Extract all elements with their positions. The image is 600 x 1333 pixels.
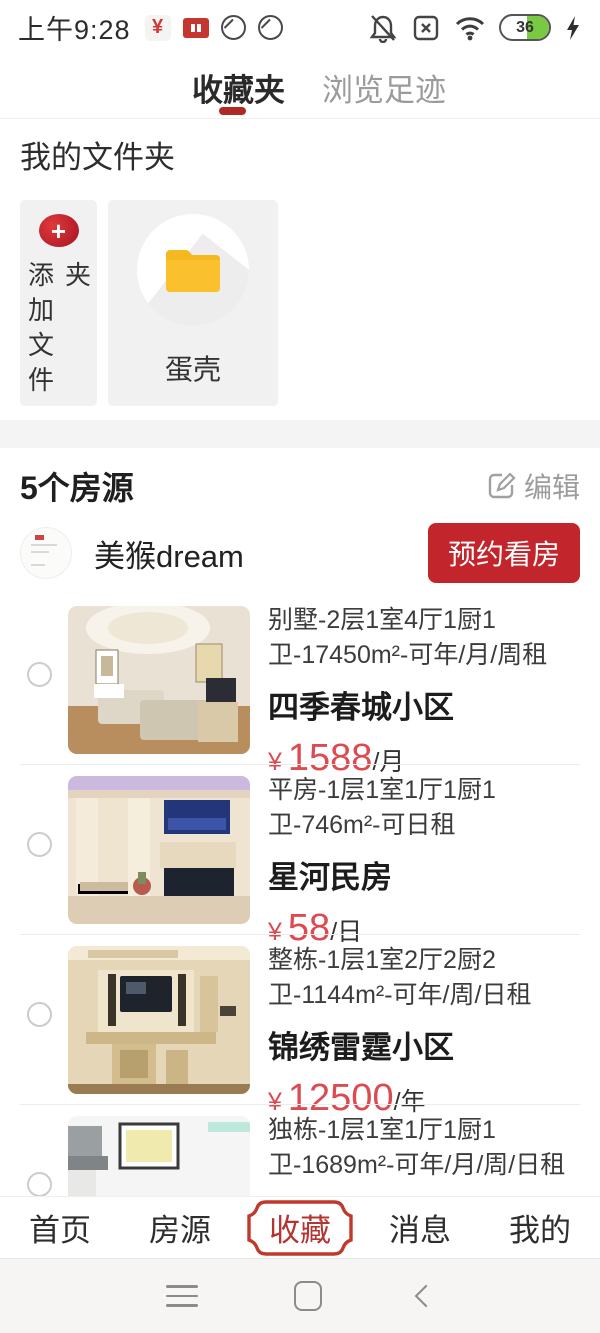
nav-listings[interactable]: 房源 [120,1197,240,1258]
section-divider [0,420,600,448]
add-folder-icon: + [39,214,79,247]
circle-app-icon [221,15,246,40]
nav-favorites-label: 收藏 [269,1205,331,1250]
active-tab-underline [219,107,246,115]
listing-desc: 平房-1层1室1厅1厨1卫-746m²-可日租 [268,773,586,843]
system-status-icons: 36 [368,13,582,43]
listing-desc: 别墅-2层1室4厅1厨1卫-17450m²-可年/月/周租 [268,603,586,673]
landlord-name: 美猴dream [94,531,244,576]
listing-desc: 独栋-1层1室1厅1厨1卫-1689m²-可年/月/周/日租 [268,1113,586,1183]
listing-item[interactable]: 整栋-1层1室2厅2厨2卫-1144m²-可年/周/日租 锦绣雷霆小区 ¥ 12… [0,935,600,1105]
landlord-row: 美猴dream 预约看房 [0,515,600,591]
listing-count: 5个房源 [20,463,134,509]
select-radio[interactable] [27,1002,52,1027]
edit-pencil-icon [486,471,516,501]
listing-item[interactable]: 平房-1层1室1厅1厨1卫-746m²-可日租 星河民房 ¥ 58 /日 [0,765,600,935]
circle-app-icon [258,15,283,40]
notification-icons: ¥ [145,15,283,41]
listing-photo [68,776,250,924]
select-radio[interactable] [27,662,52,687]
yuan-app-icon: ¥ [145,15,171,41]
listing-photo [68,606,250,754]
tab-history[interactable]: 浏览足迹 [322,65,446,110]
listing-name: 星河民房 [268,852,586,897]
book-viewing-button[interactable]: 预约看房 [428,523,580,583]
edit-button[interactable]: 编辑 [486,466,580,506]
add-folder-label: 添加文件夹 [22,261,96,406]
red-app-icon [183,18,209,38]
listing-item[interactable]: 别墅-2层1室4厅1厨1卫-17450m²-可年/月/周租 四季春城小区 ¥ 1… [0,595,600,765]
back-button[interactable] [415,1285,438,1308]
landlord-avatar[interactable] [20,527,72,579]
battery-percent: 36 [501,19,549,37]
select-radio[interactable] [27,832,52,857]
clock: 上午9:28 [18,8,131,47]
nav-profile[interactable]: 我的 [480,1197,600,1258]
android-nav-bar [0,1258,600,1333]
listing-name: 锦绣雷霆小区 [268,1022,586,1067]
listing-photo [68,946,250,1094]
status-bar: 上午9:28 ¥ 36 [0,0,600,55]
nav-messages[interactable]: 消息 [360,1197,480,1258]
listing-name: 四季春城小区 [268,682,586,727]
battery-indicator: 36 [499,14,551,41]
no-sim-icon [411,13,441,43]
folder-icon [137,214,249,326]
folder-item[interactable]: 蛋壳 [108,200,278,406]
mute-bell-icon [368,13,398,43]
nav-favorites[interactable]: 收藏 [240,1197,360,1258]
add-folder-button[interactable]: + 添加文件夹 [20,200,97,406]
folders-heading: 我的文件夹 [20,132,175,177]
nav-home[interactable]: 首页 [0,1197,120,1258]
top-tab-bar: 收藏夹 浏览足迹 [0,55,600,119]
app-screen: 上午9:28 ¥ 36 收藏夹 浏览足迹 我的文件夹 + 添加文件夹 [0,0,600,1333]
recents-button[interactable] [166,1278,198,1314]
wifi-icon [454,14,486,42]
folder-name: 蛋壳 [165,348,221,388]
select-radio[interactable] [27,1172,52,1197]
listing-desc: 整栋-1层1室2厅2厨2卫-1144m²-可年/周/日租 [268,943,586,1013]
bottom-nav: 首页 房源 收藏 消息 我的 [0,1196,600,1258]
home-button[interactable] [294,1281,322,1311]
charging-bolt-icon [564,14,582,42]
tab-favorites[interactable]: 收藏夹 [192,65,285,110]
edit-label: 编辑 [524,466,580,506]
